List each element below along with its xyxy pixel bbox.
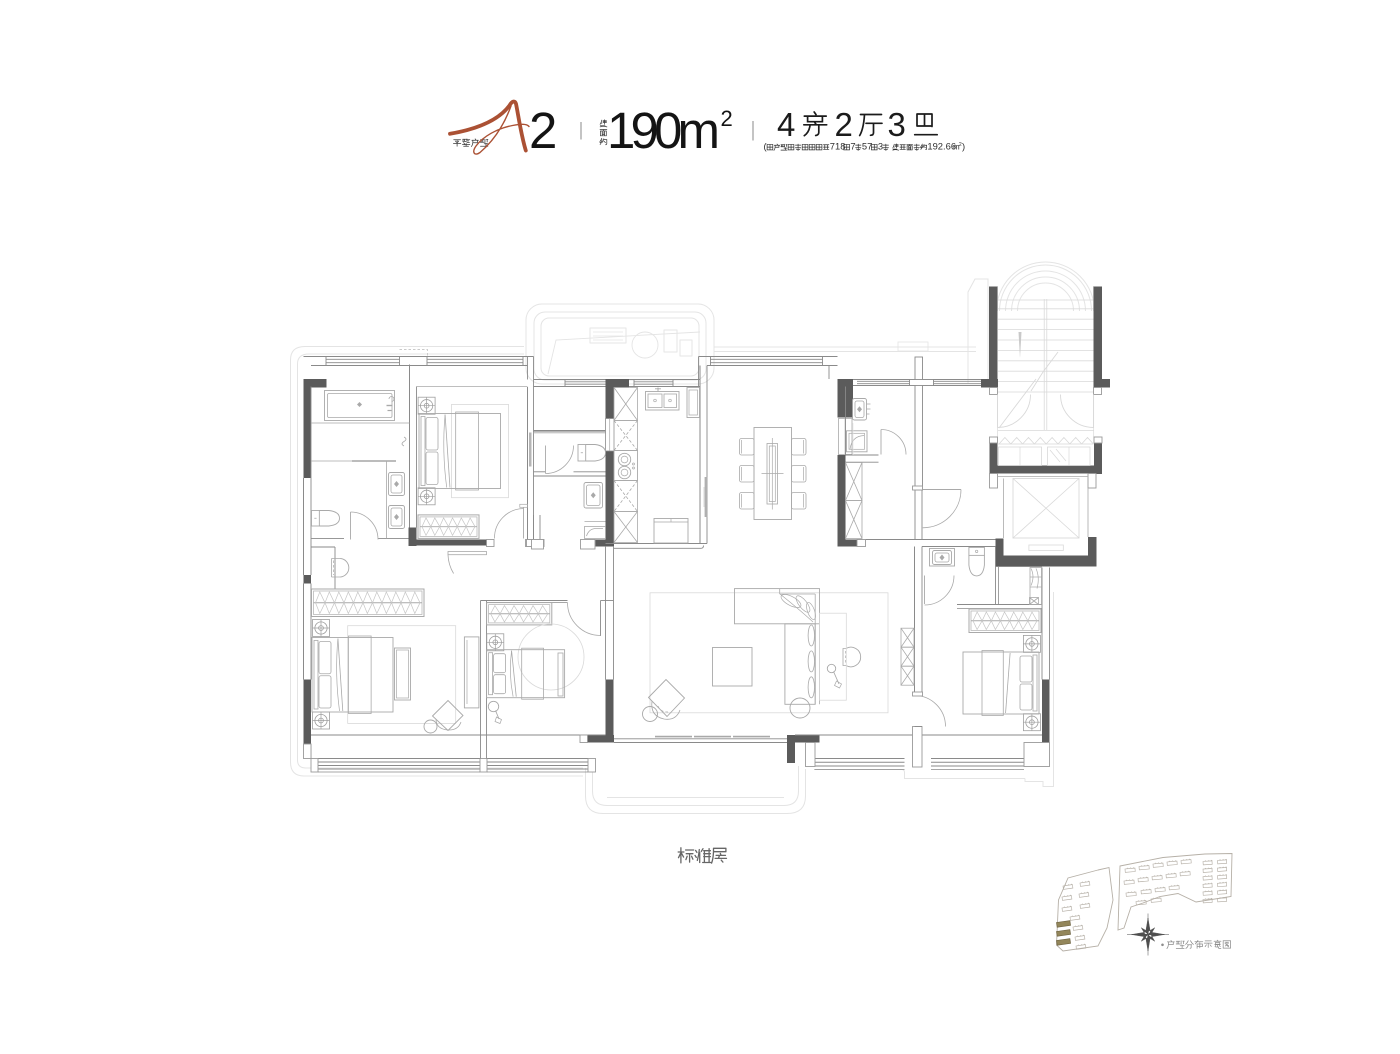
svg-text:4: 4 xyxy=(777,106,795,143)
svg-text:3: 3 xyxy=(888,106,906,143)
svg-text:7: 7 xyxy=(850,141,855,152)
svg-text:2: 2 xyxy=(835,106,853,143)
svg-text:57: 57 xyxy=(862,141,872,152)
svg-text:3: 3 xyxy=(878,141,883,152)
svg-text:2: 2 xyxy=(529,102,557,159)
svg-text:192.66: 192.66 xyxy=(927,141,956,152)
svg-text:190m: 190m xyxy=(607,102,720,159)
svg-text:): ) xyxy=(962,141,965,152)
svg-text:718: 718 xyxy=(830,141,846,152)
svg-text:2: 2 xyxy=(721,106,733,131)
